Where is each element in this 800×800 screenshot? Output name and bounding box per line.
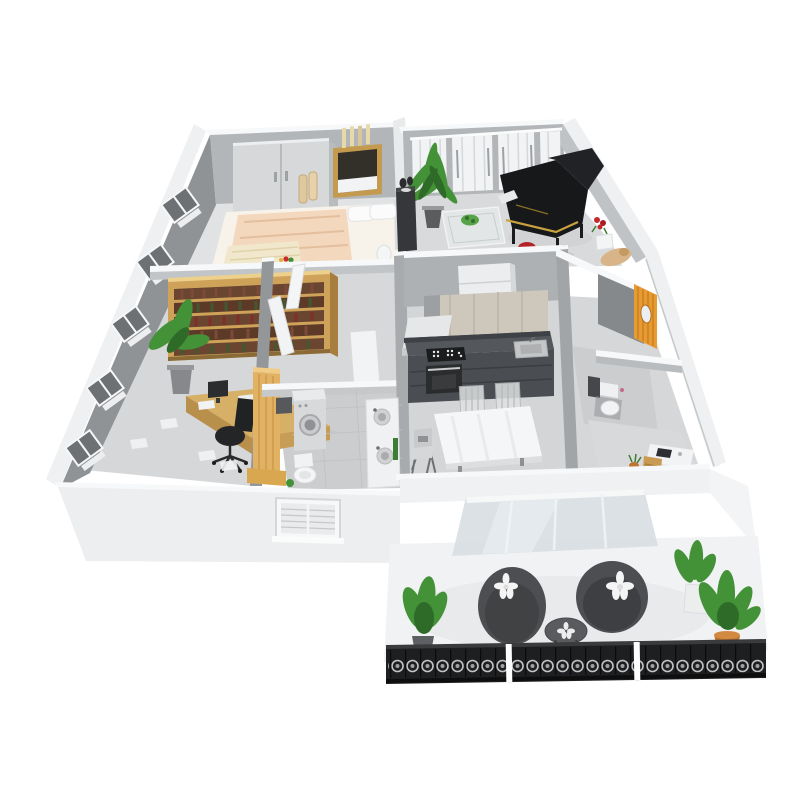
- white-box: [596, 234, 613, 250]
- round-lounge-chair-1: [478, 567, 546, 645]
- washing-machine: [292, 389, 326, 451]
- sliding-glass-door: [452, 489, 658, 556]
- round-lounge-chair-2: [576, 561, 648, 633]
- bathroom-plant: [393, 438, 398, 460]
- orange-screen-cabinet: [634, 284, 657, 349]
- oven: [426, 364, 462, 394]
- front-wall-left: [58, 487, 400, 563]
- plant-pot: [424, 208, 442, 228]
- wardrobe: [233, 138, 338, 215]
- railing-post: [506, 644, 513, 682]
- monitor: [208, 380, 228, 398]
- bathroom-plant-2: [286, 479, 294, 487]
- apartment-render: [0, 0, 800, 800]
- side-cabinet: [396, 177, 417, 253]
- wc-cabinet: [588, 376, 600, 398]
- ornate-railing: [386, 639, 766, 684]
- toy-red: [283, 256, 288, 261]
- toy-yellow: [279, 258, 283, 262]
- study-plant-pot: [170, 368, 192, 394]
- floor-plan-image: [0, 0, 800, 800]
- gas-hob: [426, 347, 466, 362]
- green-bowl: [461, 215, 479, 226]
- front-window: [272, 498, 344, 544]
- glass-coffee-table: [442, 207, 505, 248]
- hallway-door-bathroom: [350, 330, 380, 388]
- pillows: [348, 203, 397, 221]
- bathroom-cabinet: [276, 397, 292, 414]
- railing-post: [634, 642, 641, 680]
